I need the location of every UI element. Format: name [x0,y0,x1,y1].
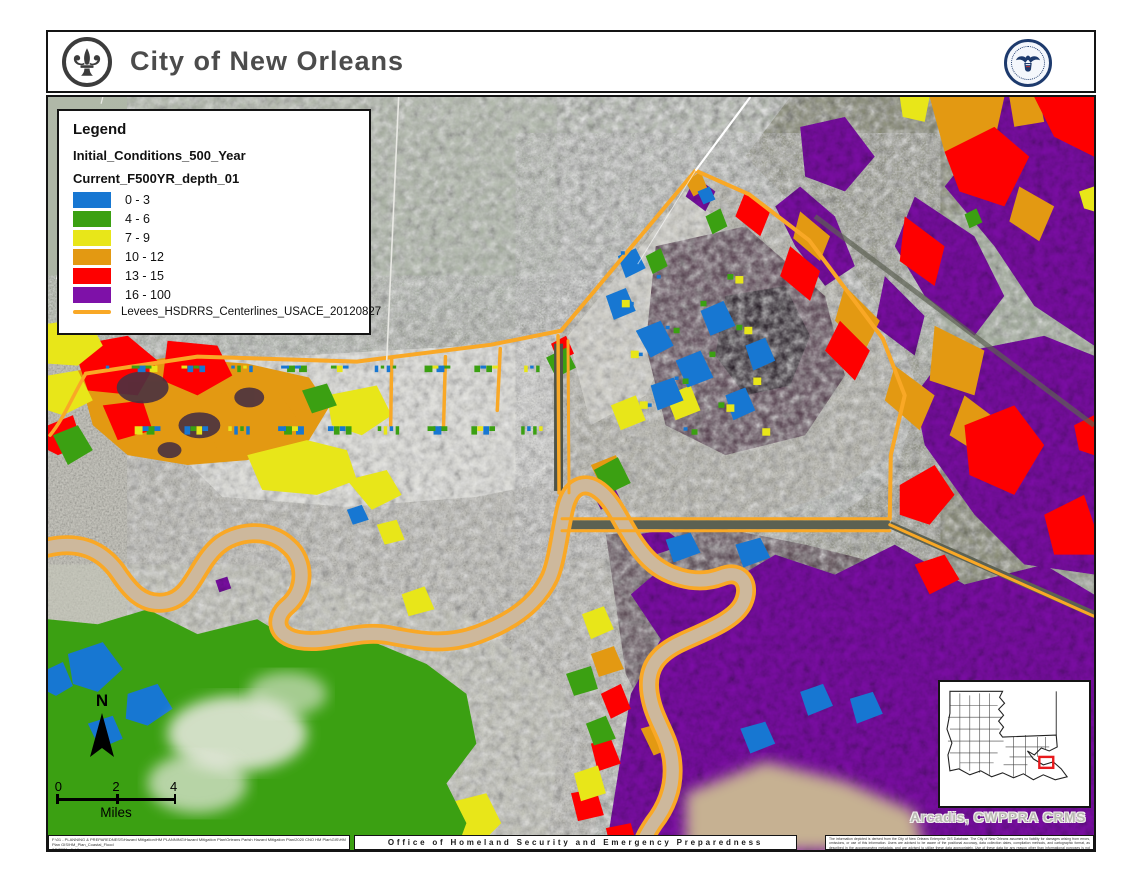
scale-bar-line [56,794,176,804]
levee-line-label: Levees_HSDRRS_Centerlines_USACE_20120827 [121,306,381,318]
legend-swatch [73,211,111,227]
north-label: N [84,691,120,711]
header-bar: City of New Orleans [46,30,1096,93]
legend-class-row: 4 - 6 [73,211,357,227]
imagery-attribution: Arcadis, CWPPRA CRMS [910,809,1086,825]
page-title: City of New Orleans [130,46,404,77]
disclaimer-box: The information depicted is derived from… [825,835,1094,850]
map-canvas: Legend Initial_Conditions_500_Year Curre… [46,95,1096,852]
scale-tick-4: 4 [170,779,177,794]
scale-bar: 0 2 4 Miles [56,779,176,820]
scale-tick-2: 2 [112,779,119,794]
homeland-security-seal-icon [1004,39,1052,87]
agency-title-box: Office of Homeland Security and Emergenc… [354,835,797,850]
legend-title: Legend [73,121,357,138]
legend-class-label: 16 - 100 [125,288,171,302]
legend-class-list: 0 - 34 - 67 - 910 - 1213 - 1516 - 100 [73,192,357,303]
legend-class-row: 7 - 9 [73,230,357,246]
legend-swatch [73,287,111,303]
legend-class-label: 0 - 3 [125,193,150,207]
scale-unit-label: Miles [56,805,176,820]
map-sheet: City of New Orleans [0,0,1140,881]
document-path-box: F:\01 - PLANNING & PREPAREDNESS\Hazard M… [48,835,350,850]
legend-swatch [73,268,111,284]
louisiana-outline [940,682,1089,806]
legend-swatch [73,230,111,246]
legend-class-label: 10 - 12 [125,250,164,264]
north-arrow-icon [87,711,117,761]
legend-class-row: 10 - 12 [73,249,357,265]
legend-swatch [73,249,111,265]
document-path-line1: F:\01 - PLANNING & PREPAREDNESS\Hazard M… [52,837,346,847]
north-arrow: N [84,691,120,766]
legend-layer-name: Initial_Conditions_500_Year [73,148,357,163]
legend-class-label: 13 - 15 [125,269,164,283]
scale-tick-0: 0 [55,779,62,794]
disclaimer-text: The information depicted is derived from… [829,837,1090,850]
legend-levee-row: Levees_HSDRRS_Centerlines_USACE_20120827 [73,306,357,318]
legend-class-label: 7 - 9 [125,231,150,245]
legend-class-row: 0 - 3 [73,192,357,208]
fleur-de-lis-icon [62,37,112,87]
legend-class-label: 4 - 6 [125,212,150,226]
legend-sublayer-name: Current_F500YR_depth_01 [73,171,357,186]
levee-line-swatch [73,310,111,314]
document-path-line2: 8/5/2021 afieldhouse [52,847,346,850]
legend-panel: Legend Initial_Conditions_500_Year Curre… [57,109,371,335]
agency-title: Office of Homeland Security and Emergenc… [388,838,763,847]
legend-class-row: 16 - 100 [73,287,357,303]
legend-class-row: 13 - 15 [73,268,357,284]
louisiana-inset-map [938,680,1091,808]
legend-swatch [73,192,111,208]
